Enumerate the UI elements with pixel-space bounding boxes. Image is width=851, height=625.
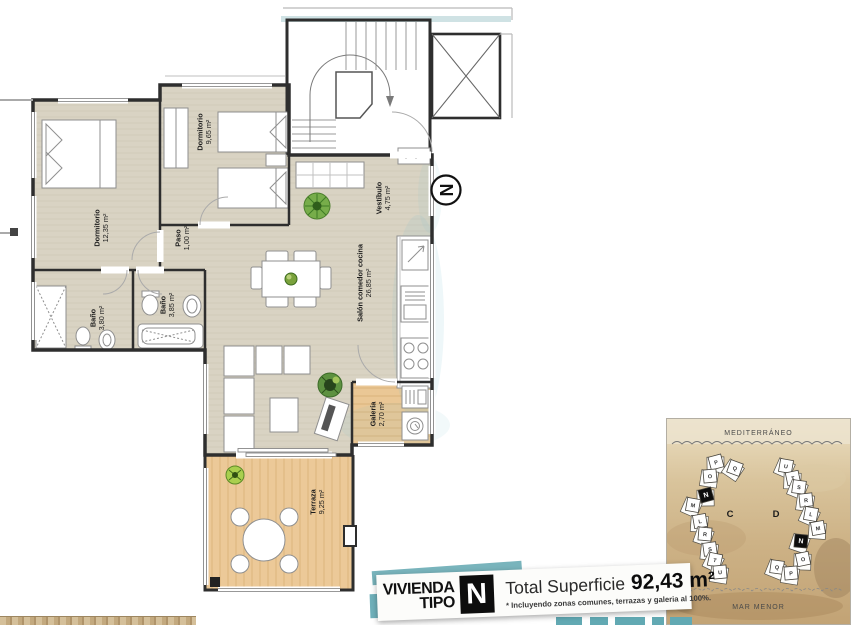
floorplan-page: Dormitorio12,35 m² Dormitorio9,65 m² Pas… <box>0 0 851 625</box>
watermark-letter <box>652 617 664 625</box>
bidet <box>99 330 115 350</box>
single-bed <box>218 168 288 208</box>
north-indicator: N <box>432 176 461 205</box>
type-letter-box: N <box>459 575 494 614</box>
bathtub <box>138 324 203 348</box>
shower <box>36 286 66 348</box>
hall-wardrobe <box>296 162 364 188</box>
galeria-appliances <box>402 386 428 440</box>
room-label-dormitorio-12: Dormitorio12,35 m² <box>93 209 111 247</box>
building-unit-letter: N <box>798 538 804 545</box>
sea-label-top: MEDITERRÁNEO <box>724 428 792 437</box>
room-label-vestibulo: Vestíbulo4,75 m² <box>375 181 393 214</box>
stairwell <box>281 8 512 155</box>
watermark-letter <box>590 617 608 625</box>
watermark-letter <box>556 617 582 625</box>
single-bed <box>218 112 288 152</box>
building-unit-letter: U <box>718 570 723 576</box>
room-label-terraza: Terraza9,25 m² <box>309 488 327 514</box>
total-surface-label: Total Superficie <box>505 574 625 599</box>
watermark-letter <box>670 617 692 625</box>
total-surface-value: 92,43 m² <box>631 568 716 594</box>
sand-photo-strip <box>0 616 196 625</box>
watermark-letter <box>615 617 645 625</box>
sea-label-bottom: MAR MENOR <box>732 604 785 611</box>
nightstand <box>266 154 286 166</box>
bathroom-sink <box>183 295 201 317</box>
toilet <box>142 291 159 315</box>
wardrobe <box>164 108 188 168</box>
room-label-galeria: Galería2,70 m² <box>369 401 387 427</box>
wall-pier <box>10 228 18 236</box>
kitchen-counter <box>397 236 431 388</box>
north-letter: N <box>436 184 456 197</box>
coffee-table <box>270 398 298 432</box>
building-unit-letter: R <box>804 498 809 504</box>
toilet <box>75 327 91 351</box>
stair-direction-arrow <box>386 96 394 107</box>
double-bed <box>42 120 116 188</box>
block-label-d: D <box>773 509 780 520</box>
building-unit-letter: R <box>703 532 708 538</box>
block-label-c: C <box>727 509 734 520</box>
badge-title: VIVIENDA TIPO <box>383 580 456 613</box>
